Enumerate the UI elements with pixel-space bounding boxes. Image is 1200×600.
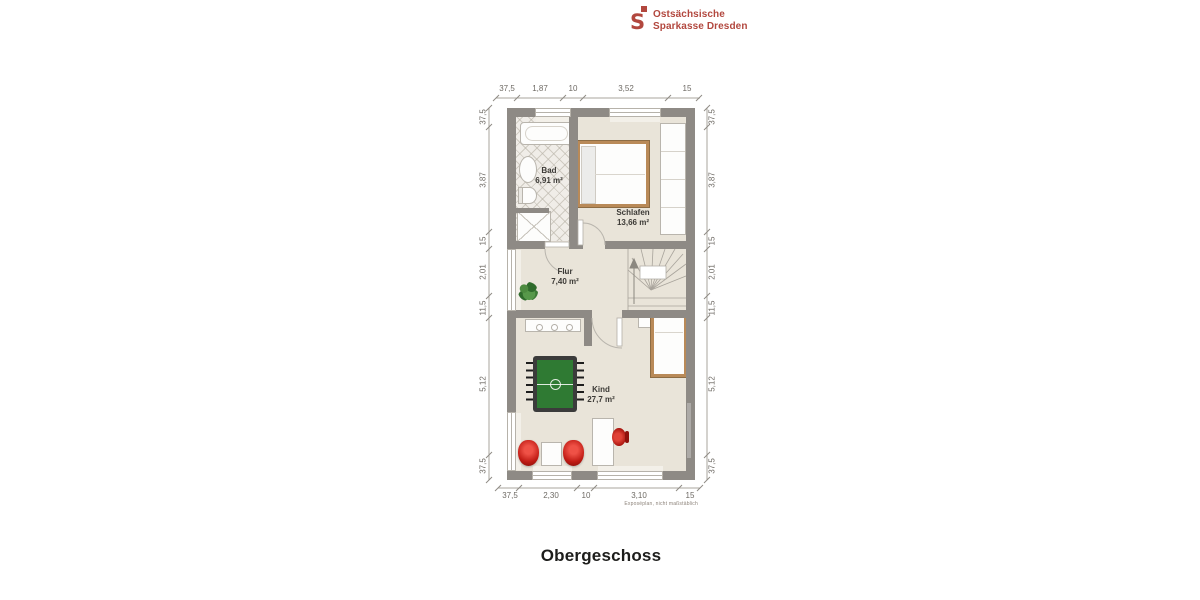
room-label-schlafen: Schlafen 13,66 m² [616, 208, 649, 228]
dim-label: 15 [683, 84, 692, 93]
dim-label: 2,01 [479, 264, 488, 280]
dim-label: 37,5 [708, 458, 717, 474]
desk-chair [612, 428, 626, 446]
room-name: Schlafen [616, 208, 649, 218]
sparkasse-s-icon: S [630, 6, 646, 34]
dim-label: 5,12 [479, 376, 488, 392]
dim-line-left [486, 105, 492, 483]
floorplan-drawing: Bad 6,91 m² Schlafen 13,66 m² Flur 7,40 … [507, 108, 695, 480]
double-bed [577, 141, 649, 207]
shower [517, 211, 551, 242]
knob [536, 324, 543, 331]
window-kind-bottom-1 [532, 471, 572, 480]
single-bed [651, 313, 687, 377]
sideboard [525, 319, 581, 332]
room-area: 7,40 m² [551, 277, 579, 287]
wall-shower-nook [516, 208, 549, 213]
dim-label: 10 [569, 84, 578, 93]
knob [566, 324, 573, 331]
room-label-bad: Bad 6,91 m² [535, 166, 563, 186]
dim-label: 1,87 [532, 84, 548, 93]
wall-watermark [687, 403, 691, 458]
dim-line-bottom [495, 485, 703, 491]
room-label-flur: Flur 7,40 m² [551, 267, 579, 287]
wall-schlafen-south [605, 241, 686, 249]
room-area: 27,7 m² [587, 395, 615, 405]
wall-door-stub [584, 310, 592, 346]
dim-label: 5,12 [708, 376, 717, 392]
room-label-kind: Kind 27,7 m² [587, 385, 615, 405]
window-flur [507, 249, 516, 311]
pillow-line [655, 332, 683, 333]
armchair [518, 440, 539, 466]
room-area: 6,91 m² [535, 176, 563, 186]
window-kind-bottom-2 [597, 471, 663, 480]
dim-label: 10 [582, 491, 591, 500]
room-area: 13,66 m² [616, 218, 649, 228]
wall-flur-kind [516, 310, 587, 318]
dim-label: 3,52 [618, 84, 634, 93]
bathtub-basin [525, 126, 568, 141]
logo-line1: Ostsächsische [653, 9, 748, 21]
dim-label: 3,87 [708, 172, 717, 188]
plant [518, 282, 538, 301]
foosball-table [533, 356, 577, 412]
mattress-split [595, 174, 645, 175]
dim-label: 2,01 [708, 264, 717, 280]
dim-label: 11,5 [708, 301, 717, 316]
dim-label: 2,30 [543, 491, 559, 500]
dim-label: 37,5 [502, 491, 518, 500]
page-title: Obergeschoss [541, 546, 662, 566]
side-table [541, 442, 562, 466]
logo-letter: S [630, 9, 645, 35]
dim-label: 3,10 [631, 491, 647, 500]
dim-label: 3,87 [479, 172, 488, 188]
room-name: Bad [535, 166, 563, 176]
armchair [563, 440, 584, 466]
wall-stair-south [622, 310, 686, 318]
floorplan-page: S Ostsächsische Sparkasse Dresden [0, 0, 1200, 600]
window-schlafen [609, 108, 661, 117]
window-kind-left [507, 412, 516, 471]
dim-label: 37,5 [479, 458, 488, 474]
dim-label: 37,5 [708, 109, 717, 125]
dim-line-right [704, 105, 710, 483]
dim-line-top [493, 95, 702, 101]
dim-label: 15 [708, 237, 717, 246]
sparkasse-logo: S Ostsächsische Sparkasse Dresden [630, 6, 748, 34]
pillows [581, 146, 596, 204]
logo-line2: Sparkasse Dresden [653, 21, 748, 33]
window-bad [535, 108, 571, 117]
window-sill [516, 250, 521, 310]
dim-label: 15 [686, 491, 695, 500]
toilet [522, 187, 537, 204]
room-name: Kind [587, 385, 615, 395]
foosball-field [537, 360, 573, 408]
logo-text: Ostsächsische Sparkasse Dresden [653, 6, 748, 34]
wardrobe [660, 123, 686, 235]
wall-bad-schlafen [569, 117, 578, 241]
dim-label: 11,5 [479, 301, 488, 316]
foosball-rods-right [577, 362, 584, 406]
knob [551, 324, 558, 331]
bathtub [520, 122, 573, 145]
room-name: Flur [551, 267, 579, 277]
window-sill [610, 117, 660, 122]
dim-label: 37,5 [479, 109, 488, 125]
dim-label: 37,5 [499, 84, 515, 93]
desk [592, 418, 614, 466]
wall-divider-foot [569, 241, 583, 249]
foosball-rods-left [526, 362, 533, 406]
wall-bad-south [516, 241, 545, 249]
dim-label: 15 [479, 237, 488, 246]
disclaimer-text: Exposéplan, nicht maßstäblich [624, 501, 698, 507]
